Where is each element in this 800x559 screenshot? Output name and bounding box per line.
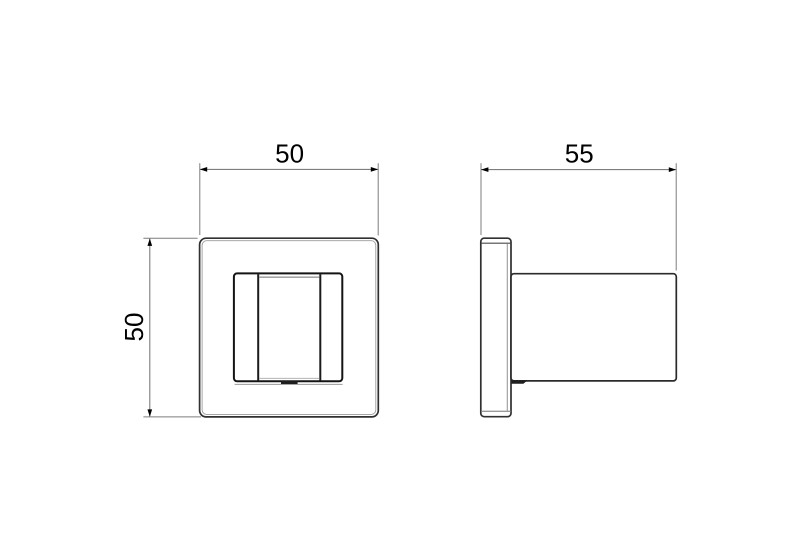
svg-text:50: 50 [275,139,304,169]
svg-text:50: 50 [119,313,149,342]
svg-text:55: 55 [565,139,594,169]
